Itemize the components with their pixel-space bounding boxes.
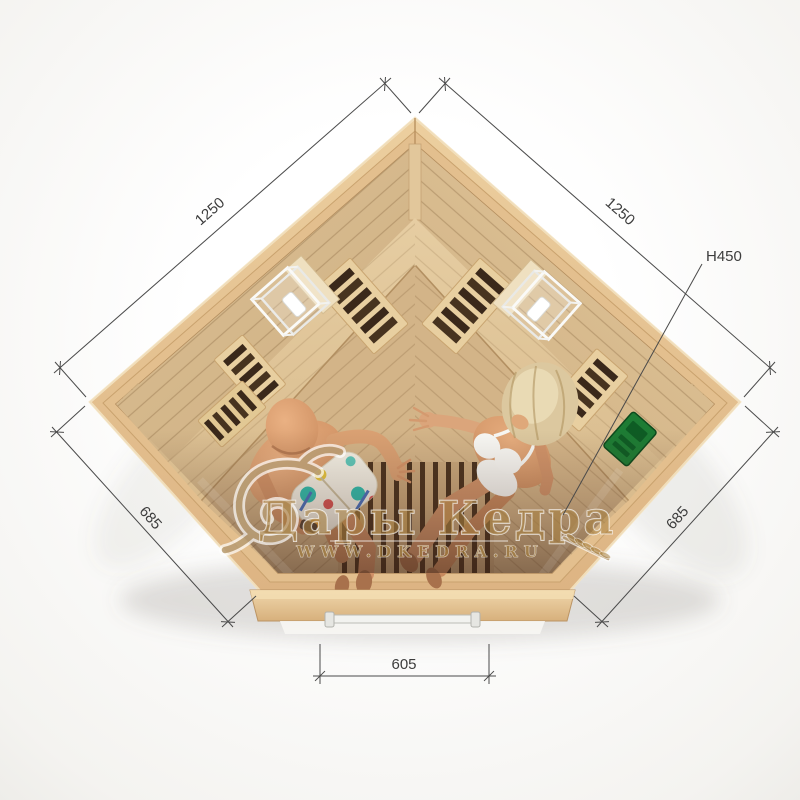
dimension-label-bench-height: H450: [706, 248, 742, 265]
dimension-label-left-wall: 1250: [192, 194, 228, 229]
dimension-label-door-width: 605: [391, 656, 416, 673]
corner-trim-post: [409, 144, 421, 220]
door-front: [250, 590, 575, 634]
dimension-label-right-wall: 1250: [602, 194, 638, 229]
sauna-top-view-render: Дары Кедра WWW.DKEDRA.RU: [0, 0, 800, 800]
watermark-website: WWW.DKEDRA.RU: [295, 542, 543, 561]
product-render-canvas: Дары Кедра WWW.DKEDRA.RU: [0, 0, 800, 800]
